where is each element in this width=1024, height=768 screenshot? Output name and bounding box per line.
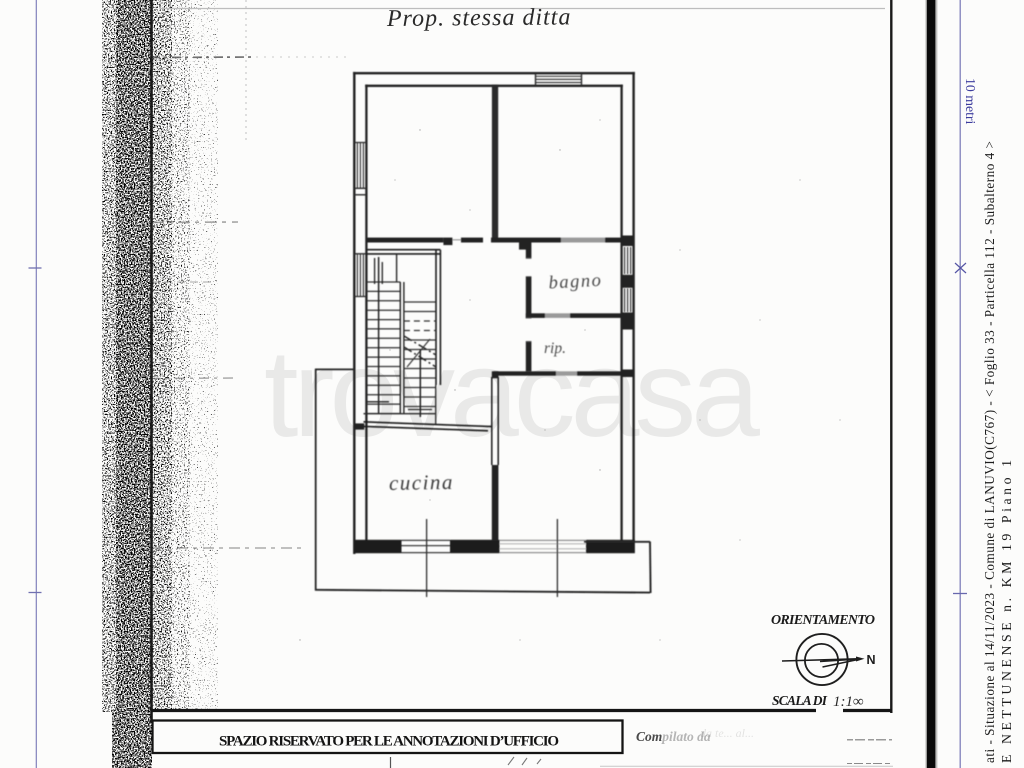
svg-text:SPAZIO RISERVATO PER LE ANNOTA: SPAZIO RISERVATO PER LE ANNOTAZIONI D’UF… (219, 733, 559, 749)
svg-text:cucina: cucina (389, 470, 454, 495)
svg-text:trovacasa: trovacasa (264, 325, 760, 463)
svg-text:N: N (867, 653, 876, 667)
svg-text:1:1∞: 1:1∞ (833, 694, 864, 710)
svg-text:da te... al...: da te... al... (700, 726, 754, 740)
svg-text:Prop. stessa ditta: Prop. stessa ditta (386, 4, 572, 32)
svg-text:bagno: bagno (548, 271, 603, 294)
svg-text:10 metri: 10 metri (963, 78, 978, 125)
svg-text:ORIENTAMENTO: ORIENTAMENTO (771, 613, 875, 628)
svg-text:E NETTUNENSE n. KM 19 Piano 1: E NETTUNENSE n. KM 19 Piano 1 (999, 460, 1014, 763)
svg-text:rip.: rip. (544, 340, 566, 357)
svg-text:ati - Situazione al 14/11/2023: ati - Situazione al 14/11/2023 - Comune … (982, 141, 997, 763)
svg-text:SCALA DI: SCALA DI (772, 693, 828, 708)
